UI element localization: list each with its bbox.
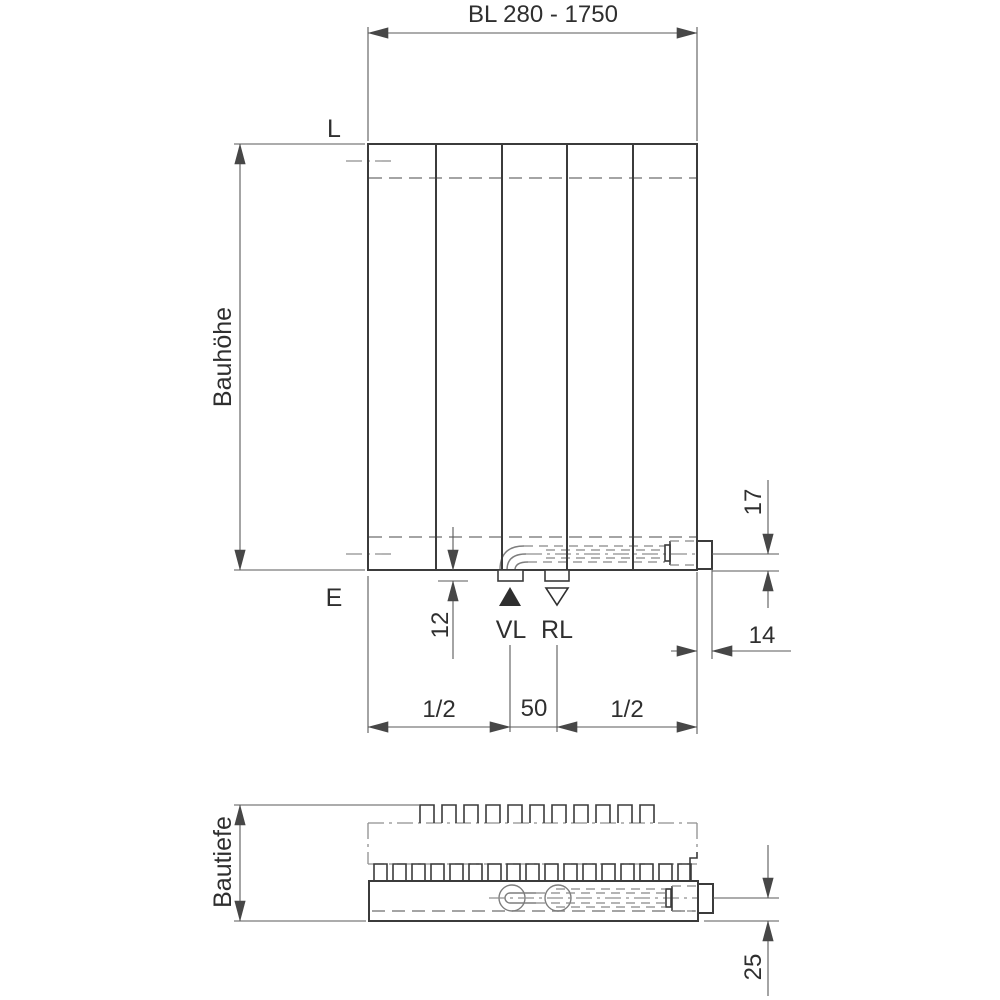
dim17-label: 17 [740,489,767,516]
depth-view [368,805,713,921]
top-level-label: L [327,115,341,143]
depth-union-nut [698,884,713,913]
bl-extension-lines [368,27,697,141]
dim14-extension-lines [697,569,712,734]
dim25-extension-lines [704,898,779,921]
radiator-body [368,144,697,570]
dim14-label: 14 [749,622,776,649]
bl-dimension-label: BL 280 - 1750 [468,1,618,28]
depth-pipe [489,884,713,913]
union-nut [697,541,712,569]
front-view: VL RL [346,144,712,732]
height-dimension-label: Bauhöhe [209,307,237,407]
front-plate [369,881,698,921]
return-label: RL [541,616,573,644]
fin-row-lower [374,864,691,881]
return-triangle-icon [546,588,568,605]
bottom-level-label: E [326,584,343,612]
dim17-extension-lines [712,554,779,571]
convector-phantom-outline [368,823,697,864]
dim25-label: 25 [740,954,767,981]
dimensions-depth: Bautiefe 25 [209,805,779,996]
supply-label: VL [496,616,527,644]
height-extension-lines [234,144,365,570]
dim12-label: 12 [427,612,454,639]
half-left-label: 1/2 [422,696,455,723]
radiator-dimension-drawing: VL RL BL 280 - 1750 Bauhöhe L E 17 14 12 [0,0,1000,1000]
supply-triangle-icon [499,587,521,606]
spacing50-label: 50 [521,695,548,722]
return-tab [545,570,569,581]
drawing-svg: VL RL BL 280 - 1750 Bauhöhe L E 17 14 12 [0,0,1000,1000]
supply-tab [498,570,523,581]
half-right-label: 1/2 [610,696,643,723]
fin-row-upper [420,805,654,823]
depth-dimension-label: Bautiefe [209,816,237,908]
